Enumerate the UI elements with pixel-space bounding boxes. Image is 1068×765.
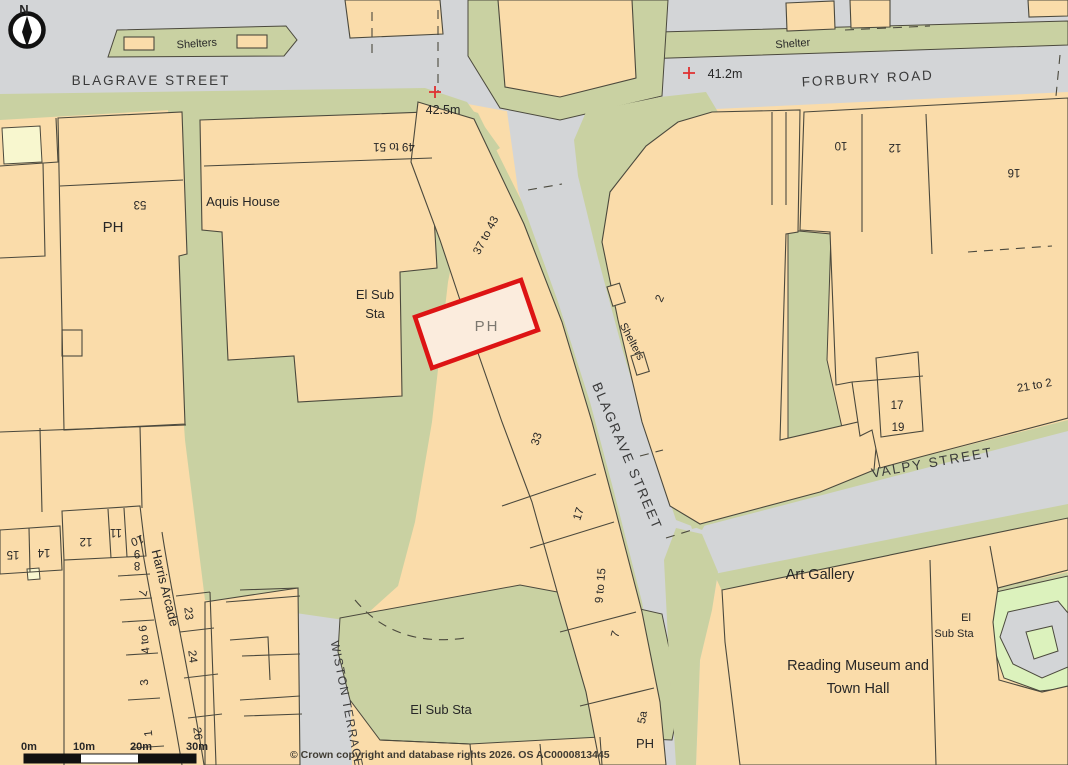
site-plan-map: PH BLAGRAVE STREET FORBURY ROAD BLAGRAVE… (0, 0, 1068, 765)
number-10: 10 (835, 139, 848, 151)
bus-shelter-1 (124, 37, 154, 50)
number-19: 19 (892, 422, 905, 434)
map-canvas: PH BLAGRAVE STREET FORBURY ROAD BLAGRAVE… (0, 0, 1068, 765)
label-el-sub-right-2: Sub Sta (934, 628, 974, 640)
number-11: 11 (110, 526, 122, 538)
scale-10m: 10m (73, 741, 95, 753)
building-aquis-house (200, 112, 437, 402)
label-el-sub-right-1: El (961, 612, 971, 624)
number-9: 9 (134, 547, 140, 559)
number-8: 8 (134, 559, 140, 571)
building-crossing (498, 0, 636, 97)
bus-shelter-2 (237, 35, 267, 48)
number-8-9: 8 9 (134, 547, 140, 571)
label-museum-1: Reading Museum and (787, 658, 929, 674)
number-53: 53 (134, 198, 147, 210)
number-17: 17 (891, 400, 904, 412)
number-12b: 12 (80, 535, 93, 547)
label-ph-bottom: PH (636, 736, 654, 751)
building-left-column-ph (58, 112, 187, 430)
number-26: 26 (190, 727, 203, 741)
number-15: 15 (7, 548, 20, 560)
building-top-right-1 (786, 1, 835, 31)
copyright-notice: © Crown copyright and database rights 20… (290, 749, 610, 761)
scale-bar-seg1 (24, 754, 81, 763)
spot-height-1: 42.5m (426, 103, 461, 117)
building-top-right-2 (850, 0, 890, 28)
scale-30m: 30m (186, 741, 208, 753)
number-24: 24 (185, 650, 199, 665)
pale-yellow-parcel-1 (2, 126, 42, 164)
building-top-right-3 (1028, 0, 1068, 17)
pale-yellow-parcel-2 (27, 568, 40, 580)
scale-0m: 0m (21, 741, 37, 753)
label-aquis-house: Aquis House (206, 194, 280, 209)
number-23: 23 (181, 607, 194, 621)
building-bottom-left-block (205, 588, 300, 765)
compass-north-label: N (19, 2, 28, 17)
scale-bar-seg2 (138, 754, 196, 763)
spot-height-2: 41.2m (708, 67, 743, 81)
scale-20m: 20m (130, 741, 152, 753)
number-12: 12 (889, 141, 902, 153)
label-el-sub-center-1: El Sub (356, 287, 394, 302)
label-museum-2: Town Hall (827, 681, 890, 697)
number-49to51: 49 to 51 (373, 140, 415, 152)
number-16: 16 (1008, 166, 1021, 178)
building-top-center (345, 0, 443, 38)
label-el-sub-bottom: El Sub Sta (410, 702, 472, 717)
label-art-gallery: Art Gallery (786, 567, 855, 583)
street-blagrave-top: BLAGRAVE STREET (72, 73, 231, 88)
label-el-sub-center-2: Sta (365, 306, 385, 321)
label-shelter-topright: Shelter (775, 37, 811, 51)
label-ph-left: PH (103, 219, 124, 236)
plot-ph-label: PH (475, 318, 500, 335)
number-14: 14 (37, 546, 50, 558)
